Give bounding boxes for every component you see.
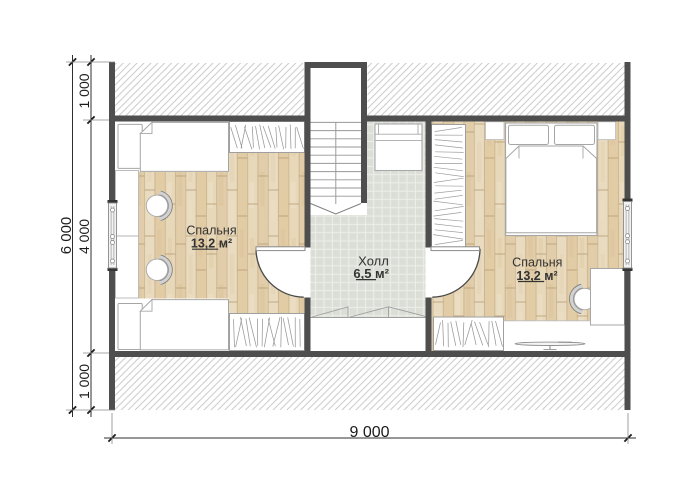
svg-text:6,5 м²: 6,5 м² [353,266,389,281]
svg-text:Спальня: Спальня [512,255,562,269]
svg-text:9 000: 9 000 [349,424,389,441]
svg-text:6 000: 6 000 [58,217,75,255]
svg-text:1 000: 1 000 [76,73,92,108]
svg-text:Спальня: Спальня [186,224,236,238]
svg-text:1 000: 1 000 [76,364,92,399]
svg-text:4 000: 4 000 [76,219,92,254]
